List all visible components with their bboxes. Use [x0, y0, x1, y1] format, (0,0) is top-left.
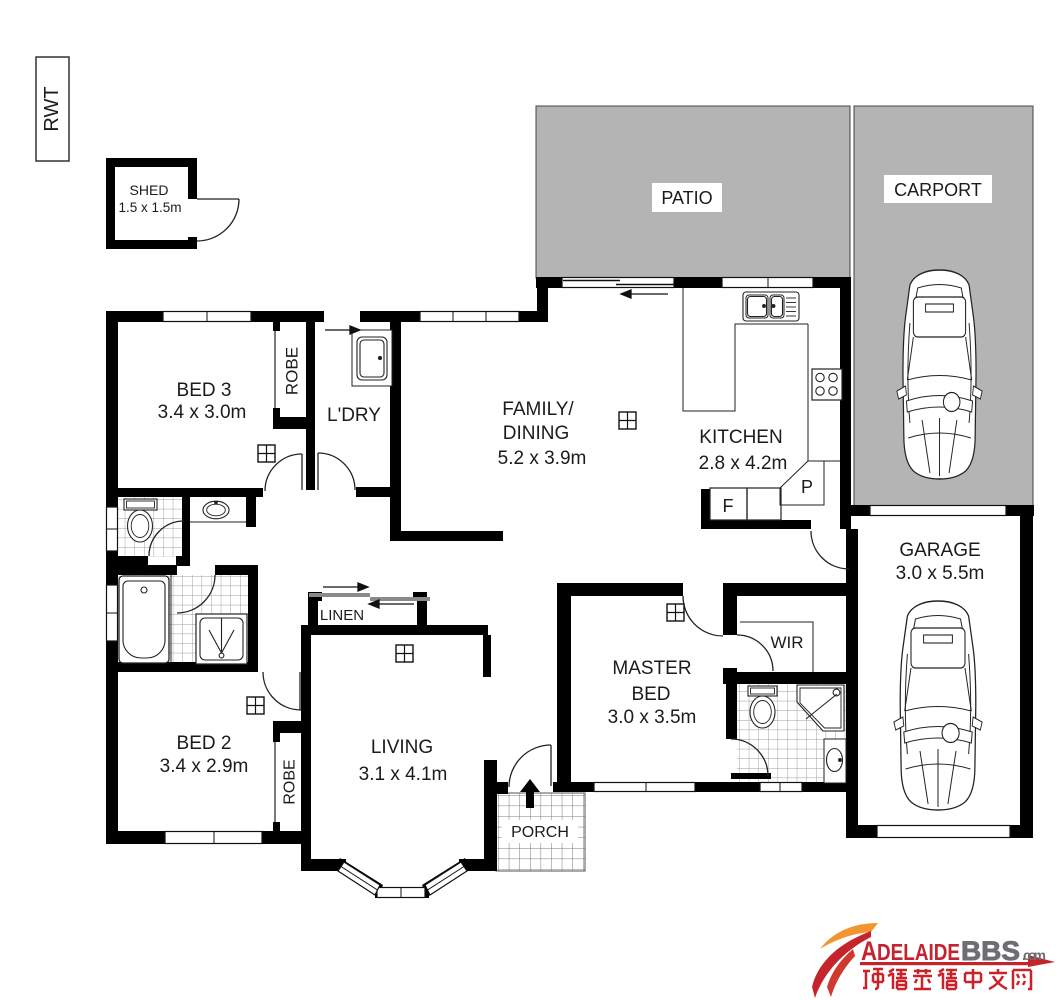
- svg-text:ROBE: ROBE: [282, 759, 299, 804]
- svg-text:2.8 x 4.2m: 2.8 x 4.2m: [699, 453, 788, 474]
- svg-text:LIVING: LIVING: [371, 737, 433, 758]
- svg-text:MASTER: MASTER: [612, 658, 691, 679]
- svg-text:CARPORT: CARPORT: [894, 180, 982, 200]
- svg-text:RWT: RWT: [41, 86, 63, 131]
- svg-text:FAMILY/: FAMILY/: [502, 399, 574, 420]
- svg-text:3.4 x 2.9m: 3.4 x 2.9m: [160, 756, 249, 777]
- svg-text:3.4 x 3.0m: 3.4 x 3.0m: [158, 402, 247, 423]
- svg-text:ROBE: ROBE: [283, 347, 302, 395]
- svg-text:P: P: [801, 477, 813, 497]
- svg-text:SHED: SHED: [130, 182, 169, 198]
- svg-text:F: F: [723, 496, 734, 516]
- svg-text:GARAGE: GARAGE: [899, 540, 980, 561]
- svg-text:WIR: WIR: [770, 633, 803, 652]
- svg-text:3.0 x 5.5m: 3.0 x 5.5m: [896, 563, 985, 584]
- svg-text:PATIO: PATIO: [661, 188, 712, 208]
- svg-text:5.2 x 3.9m: 5.2 x 3.9m: [498, 448, 587, 469]
- svg-text:.com: .com: [1022, 947, 1046, 963]
- svg-text:L'DRY: L'DRY: [327, 405, 381, 426]
- svg-text:DINING: DINING: [503, 423, 570, 444]
- svg-text:3.0 x 3.5m: 3.0 x 3.5m: [608, 707, 697, 728]
- svg-text:3.1 x 4.1m: 3.1 x 4.1m: [359, 764, 448, 785]
- svg-text:KITCHEN: KITCHEN: [699, 427, 782, 448]
- svg-text:ADELAIDE: ADELAIDE: [861, 936, 960, 966]
- svg-text:BED 3: BED 3: [177, 380, 232, 401]
- svg-text:BBS: BBS: [961, 936, 1020, 966]
- svg-text:BED: BED: [631, 684, 670, 705]
- svg-text:1.5 x 1.5m: 1.5 x 1.5m: [118, 200, 181, 215]
- svg-text:LINEN: LINEN: [320, 607, 364, 624]
- svg-text:PORCH: PORCH: [511, 824, 569, 841]
- svg-text:BED 2: BED 2: [177, 733, 232, 754]
